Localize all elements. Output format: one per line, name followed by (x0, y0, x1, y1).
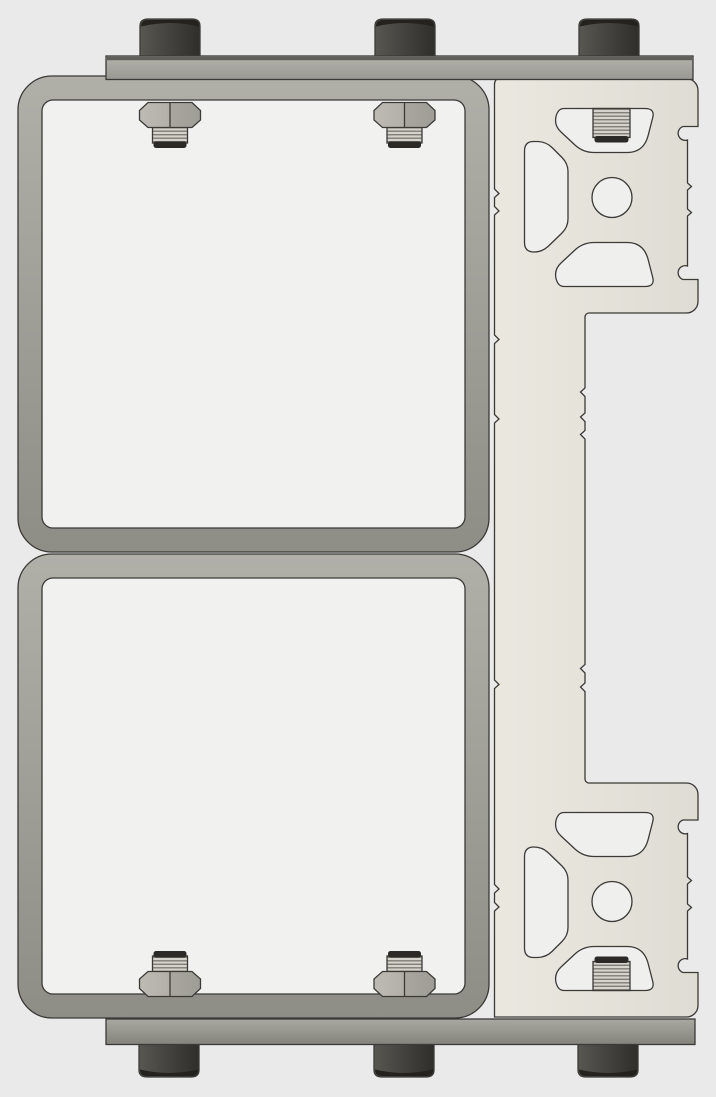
top-mounting-plate-edge (107, 57, 692, 60)
cad-canvas: Orthographic CAD render of a bolted asse… (0, 0, 716, 1097)
bolt-top-left (140, 19, 200, 57)
bolt-top-right (579, 19, 639, 57)
cad-render: Orthographic CAD render of a bolted asse… (0, 0, 716, 1097)
bottom-mounting-plate (106, 1019, 695, 1045)
lower-frame-opening (42, 578, 465, 994)
assembly (0, 0, 716, 1097)
upper-frame-opening (42, 100, 465, 528)
bolt-top-center (375, 19, 435, 57)
